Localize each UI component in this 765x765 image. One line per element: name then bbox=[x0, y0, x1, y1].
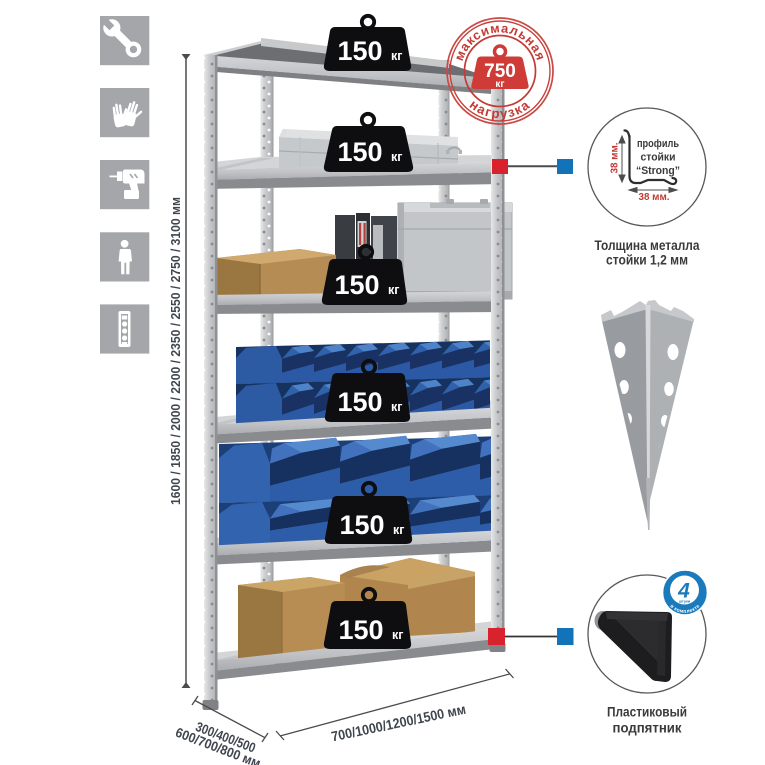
svg-text:кг: кг bbox=[392, 628, 403, 642]
svg-text:стойки: стойки bbox=[641, 152, 676, 164]
svg-text:кг: кг bbox=[391, 49, 402, 63]
svg-text:38 мм.: 38 мм. bbox=[609, 142, 621, 173]
svg-text:150: 150 bbox=[337, 36, 382, 66]
svg-text:штуки: штуки bbox=[679, 600, 691, 604]
svg-text:профиль: профиль bbox=[637, 138, 679, 150]
svg-text:1600 / 1850 / 2000 / 2200 / 23: 1600 / 1850 / 2000 / 2200 / 2350 / 2550 … bbox=[169, 197, 183, 505]
svg-text:кг: кг bbox=[388, 283, 399, 297]
svg-text:Пластиковый: Пластиковый bbox=[607, 705, 687, 720]
svg-text:подпятник: подпятник bbox=[613, 721, 682, 736]
svg-text:“Strong”: “Strong” bbox=[636, 165, 680, 177]
svg-text:150: 150 bbox=[337, 137, 382, 167]
svg-text:стойки 1,2 мм: стойки 1,2 мм bbox=[606, 253, 688, 268]
svg-text:150: 150 bbox=[339, 510, 384, 540]
svg-text:150: 150 bbox=[337, 387, 382, 417]
svg-text:кг: кг bbox=[391, 150, 402, 164]
svg-text:150: 150 bbox=[338, 615, 383, 645]
svg-text:Толщина металла: Толщина металла bbox=[595, 238, 700, 253]
svg-text:кг: кг bbox=[393, 523, 404, 537]
svg-text:38 мм.: 38 мм. bbox=[639, 191, 670, 203]
svg-text:кг: кг bbox=[495, 79, 504, 90]
svg-text:150: 150 bbox=[334, 270, 379, 300]
svg-text:кг: кг bbox=[391, 400, 402, 414]
